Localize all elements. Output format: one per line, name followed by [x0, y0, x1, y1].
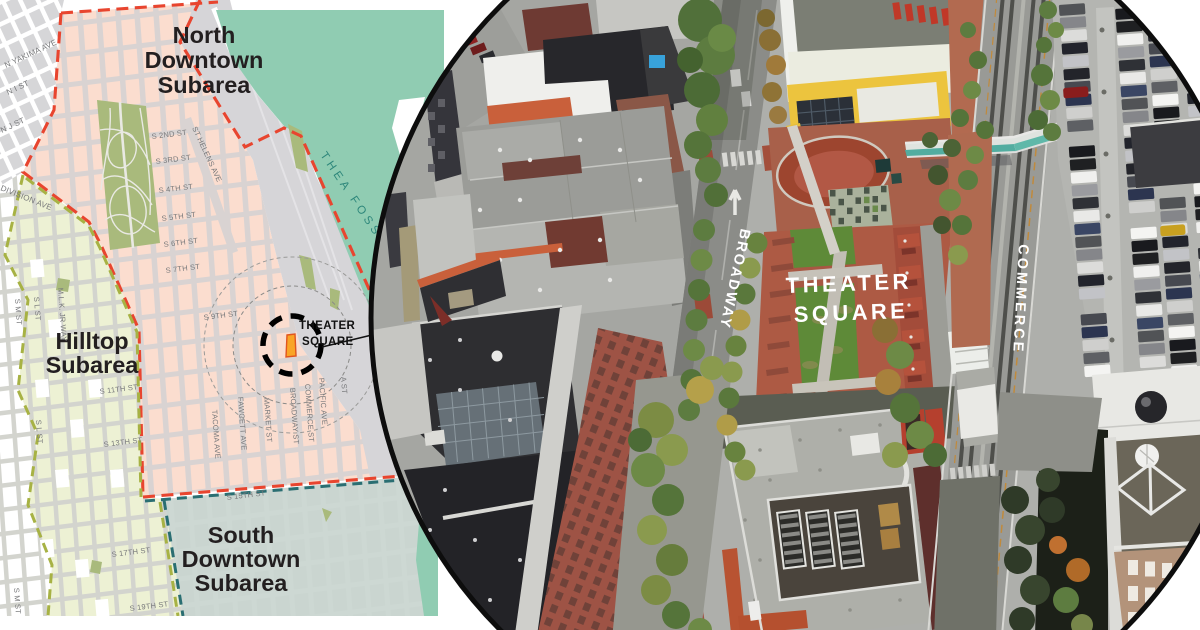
svg-text:S L ST: S L ST	[32, 297, 43, 322]
svg-text:Subarea: Subarea	[158, 72, 252, 98]
svg-text:Downtown: Downtown	[145, 47, 264, 73]
svg-text:Subarea: Subarea	[46, 352, 140, 378]
svg-text:Subarea: Subarea	[195, 570, 289, 596]
svg-text:S L ST: S L ST	[34, 420, 45, 445]
svg-text:A ST: A ST	[339, 377, 349, 395]
svg-text:North: North	[173, 22, 236, 48]
svg-text:SQUARE: SQUARE	[302, 336, 354, 348]
svg-text:South: South	[208, 522, 275, 548]
svg-text:S M ST: S M ST	[12, 588, 23, 615]
svg-text:Downtown: Downtown	[182, 546, 301, 572]
svg-text:S M ST: S M ST	[13, 299, 24, 326]
svg-text:THEATER: THEATER	[785, 269, 912, 298]
svg-text:THEATER: THEATER	[299, 320, 356, 332]
svg-text:SQUARE: SQUARE	[793, 298, 908, 327]
